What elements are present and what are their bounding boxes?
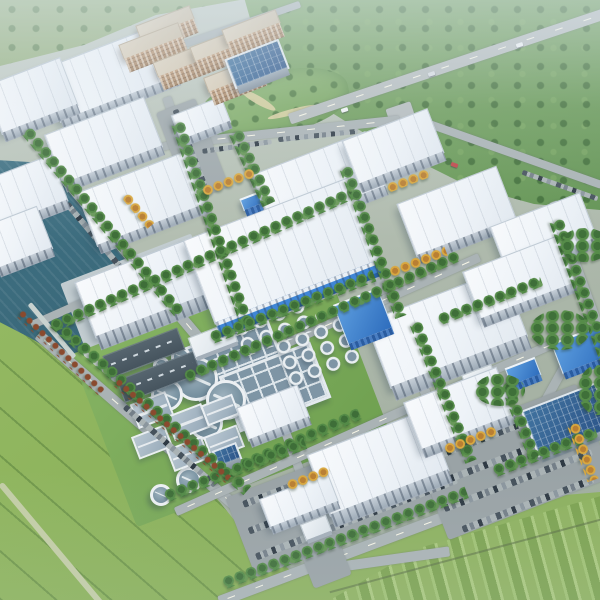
tree-grove [530, 310, 590, 350]
tree-grove [475, 374, 525, 406]
aerial-render-scene [0, 0, 600, 600]
